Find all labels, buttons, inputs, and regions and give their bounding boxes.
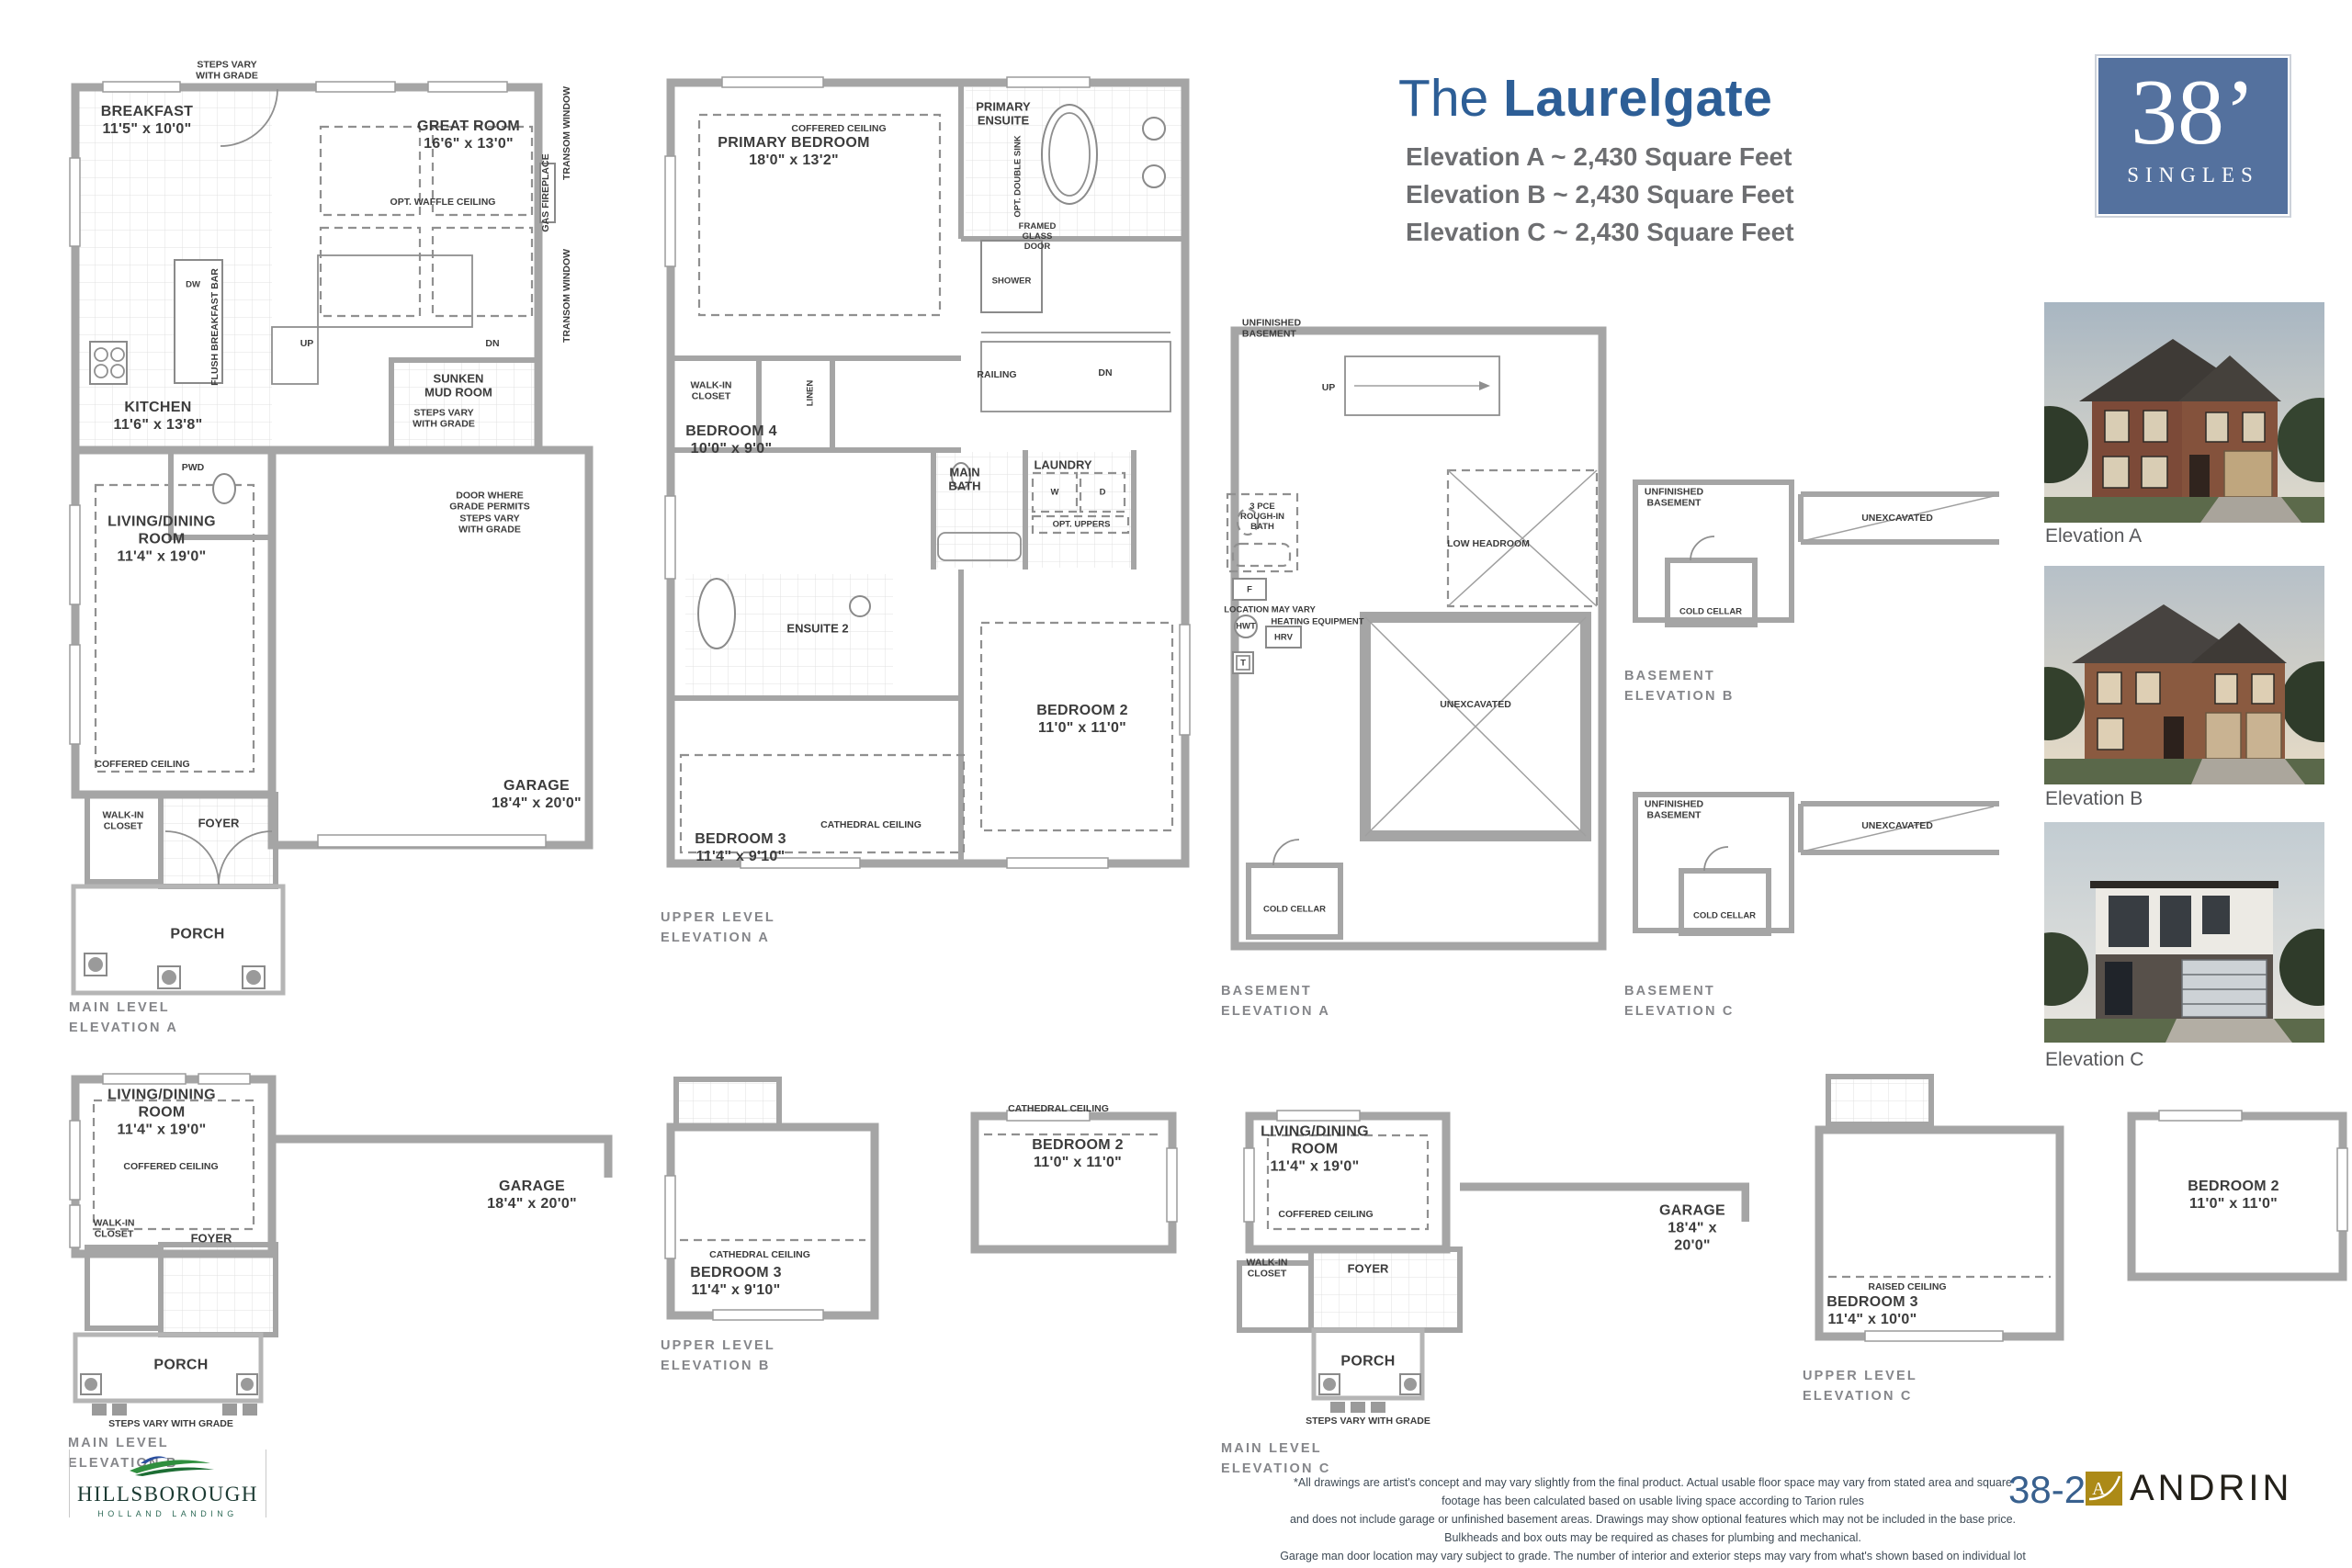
foyer-label: FOYER bbox=[1348, 1261, 1389, 1275]
elevation-c-photo bbox=[2044, 822, 2324, 1043]
raised-ceiling-label: RAISED CEILING bbox=[1868, 1281, 1946, 1292]
cold-cellar-label: COLD CELLAR bbox=[1263, 904, 1326, 914]
bedroom2-label: BEDROOM 2 11'0" x 11'0" bbox=[1032, 1137, 1124, 1172]
page-title-name: Laurelgate bbox=[1503, 69, 1772, 128]
foyer-label: FOYER bbox=[191, 1231, 232, 1245]
hwt-label: HWT bbox=[1236, 621, 1256, 631]
page-code: 38-2 bbox=[2008, 1468, 2086, 1512]
double-sink-label: OPT. DOUBLE SINK bbox=[1012, 135, 1023, 217]
builder-logo: A ANDRIN bbox=[2086, 1468, 2292, 1509]
unexcavated-label: UNEXCAVATED bbox=[1861, 820, 1933, 831]
walk-in-closet-label: WALK-IN CLOSET bbox=[691, 380, 732, 403]
dishwasher-label: DW bbox=[186, 279, 200, 289]
coffered-ceiling-label: COFFERED CEILING bbox=[95, 759, 189, 770]
bedroom3-label: BEDROOM 3 11'4" x 9'10" bbox=[690, 1265, 782, 1300]
porch-label: PORCH bbox=[1340, 1354, 1395, 1371]
basement-c-plan: UNFINISHED BASEMENT UNEXCAVATED COLD CEL… bbox=[1617, 716, 2003, 1047]
plan-caption: UPPER LEVEL ELEVATION A bbox=[661, 908, 775, 949]
unexcavated-label: UNEXCAVATED bbox=[1861, 513, 1933, 524]
legal-disclaimer: *All drawings are artist's concept and m… bbox=[1277, 1473, 2029, 1568]
rough-in-bath-label: 3 PCE ROUGH-IN BATH bbox=[1240, 502, 1284, 533]
cold-cellar-label: COLD CELLAR bbox=[1679, 606, 1742, 616]
washer-label: W bbox=[1051, 487, 1059, 497]
badge-type: SINGLES bbox=[2098, 164, 2288, 187]
plan-caption: BASEMENT ELEVATION A bbox=[1221, 981, 1330, 1022]
elevation-a-photo bbox=[2044, 302, 2324, 523]
steps-vary-label: STEPS VARY WITH GRADE bbox=[108, 1418, 233, 1429]
garage-label: GARAGE 18'4" x 20'0" bbox=[1659, 1203, 1725, 1256]
elevation-b-photo bbox=[2044, 566, 2324, 784]
disclaimer-line: and does not include garage or unfinishe… bbox=[1277, 1510, 2029, 1547]
community-tagline: HOLLAND LANDING bbox=[70, 1509, 266, 1518]
opt-uppers-label: OPT. UPPERS bbox=[1053, 519, 1111, 529]
living-dining-label: LIVING/DINING ROOM 11'4" x 19'0" bbox=[107, 514, 216, 567]
kitchen-label: KITCHEN 11'6" x 13'8" bbox=[114, 400, 203, 434]
elevation-c-caption: Elevation C bbox=[2045, 1049, 2143, 1071]
community-logo-swoosh bbox=[113, 1452, 223, 1476]
unexcavated-label: UNEXCAVATED bbox=[1440, 699, 1511, 710]
badge-width: 38’ bbox=[2098, 63, 2288, 162]
cathedral-ceiling-label: CATHEDRAL CEILING bbox=[1008, 1103, 1109, 1114]
porch-column bbox=[85, 953, 265, 988]
walk-in-closet-label: WALK-IN CLOSET bbox=[103, 810, 144, 833]
subtitle-elevation-b: Elevation B ~ 2,430 Square Feet bbox=[1406, 175, 1794, 213]
plan-caption: UPPER LEVEL ELEVATION B bbox=[661, 1336, 775, 1377]
transom-window-label: TRANSOM WINDOW bbox=[561, 249, 572, 343]
main-level-b-plan: LIVING/DINING ROOM 11'4" x 19'0" COFFERE… bbox=[42, 1066, 630, 1461]
basement-b-plan: UNFINISHED BASEMENT UNEXCAVATED COLD CEL… bbox=[1617, 404, 2003, 735]
door-grade-note: DOOR WHERE GRADE PERMITS STEPS VARY WITH… bbox=[449, 490, 530, 536]
thermostat-label: T bbox=[1240, 658, 1246, 668]
freezer-label: F bbox=[1247, 584, 1252, 594]
elevation-a-caption: Elevation A bbox=[2045, 525, 2142, 547]
hrv-label: HRV bbox=[1274, 632, 1293, 642]
plan-caption: BASEMENT ELEVATION B bbox=[1624, 666, 1735, 707]
porch-label: PORCH bbox=[170, 927, 224, 944]
steps-vary-label: STEPS VARY WITH GRADE bbox=[413, 408, 475, 431]
laundry-label: LAUNDRY bbox=[1034, 457, 1091, 471]
page-title: The Laurelgate bbox=[1398, 68, 1772, 129]
upper-level-a-plan: COFFERED CEILING PRIMARY BEDROOM 18'0" x… bbox=[658, 55, 1209, 983]
low-headroom-label: LOW HEADROOM bbox=[1447, 538, 1530, 549]
main-bath-label: MAIN BATH bbox=[948, 466, 980, 494]
living-dining-label: LIVING/DINING ROOM 11'4" x 19'0" bbox=[1261, 1124, 1369, 1177]
cathedral-ceiling-label: CATHEDRAL CEILING bbox=[820, 819, 922, 830]
coffered-ceiling-label: COFFERED CEILING bbox=[1278, 1209, 1373, 1220]
stairs-up-label: UP bbox=[300, 338, 314, 349]
transom-window-label: TRANSOM WINDOW bbox=[561, 86, 572, 180]
main-level-c-plan: LIVING/DINING ROOM 11'4" x 19'0" COFFERE… bbox=[1216, 1102, 1749, 1488]
ensuite2-label: ENSUITE 2 bbox=[786, 621, 848, 635]
living-dining-label: LIVING/DINING ROOM 11'4" x 19'0" bbox=[107, 1088, 216, 1140]
upper-level-c-plan: BEDROOM 2 11'0" x 11'0" RAISED CEILING B… bbox=[1801, 1066, 2352, 1424]
bedroom3-label: BEDROOM 3 11'4" x 10'0" bbox=[1826, 1294, 1918, 1329]
stairs-down-label: DN bbox=[485, 338, 499, 349]
svg-text:A: A bbox=[2092, 1479, 2106, 1499]
dryer-label: D bbox=[1100, 487, 1106, 497]
stairs-down-label: DN bbox=[1098, 367, 1112, 378]
mud-room-label: SUNKEN MUD ROOM bbox=[424, 372, 492, 400]
bedroom3-label: BEDROOM 3 11'4" x 9'10" bbox=[695, 831, 786, 866]
elevation-c-rendering bbox=[2044, 822, 2324, 1043]
cold-cellar-label: COLD CELLAR bbox=[1693, 910, 1756, 920]
page-title-prefix: The bbox=[1398, 69, 1488, 128]
elevation-b-caption: Elevation B bbox=[2045, 788, 2143, 810]
unfinished-basement-label: UNFINISHED BASEMENT bbox=[1242, 318, 1301, 341]
walk-in-closet-label: WALK-IN CLOSET bbox=[1247, 1258, 1288, 1280]
brochure-page: The Laurelgate Elevation A ~ 2,430 Squar… bbox=[0, 0, 2352, 1568]
coffered-ceiling-label: COFFERED CEILING bbox=[123, 1161, 218, 1172]
breakfast-label: BREAKFAST 11'5" x 10'0" bbox=[101, 104, 193, 139]
great-room-label: GREAT ROOM 16'6" x 13'0" bbox=[417, 118, 520, 153]
disclaimer-line: *All drawings are artist's concept and m… bbox=[1277, 1473, 2029, 1510]
bedroom2-label: BEDROOM 2 11'0" x 11'0" bbox=[1036, 703, 1128, 738]
community-name: HILLSBOROUGH bbox=[70, 1483, 266, 1506]
cathedral-ceiling-label: CATHEDRAL CEILING bbox=[709, 1249, 810, 1260]
linen-label: LINEN bbox=[805, 380, 815, 407]
lot-width-badge: 38’ SINGLES bbox=[2098, 58, 2288, 214]
steps-vary-label: STEPS VARY WITH GRADE bbox=[1306, 1416, 1430, 1427]
foyer-label: FOYER bbox=[198, 816, 240, 829]
railing-label: RAILING bbox=[977, 369, 1016, 380]
porch-label: PORCH bbox=[153, 1358, 208, 1375]
bedroom2-label: BEDROOM 2 11'0" x 11'0" bbox=[2188, 1179, 2279, 1213]
community-logo: HILLSBOROUGH HOLLAND LANDING bbox=[69, 1450, 266, 1517]
stairs-up-label: UP bbox=[1322, 382, 1336, 393]
plan-caption: BASEMENT ELEVATION C bbox=[1624, 981, 1735, 1022]
unfinished-basement-label: UNFINISHED BASEMENT bbox=[1645, 487, 1703, 510]
steps-vary-label: STEPS VARY WITH GRADE bbox=[196, 60, 258, 83]
subtitle-elevation-a: Elevation A ~ 2,430 Square Feet bbox=[1406, 138, 1794, 175]
gas-fireplace-label: GAS FIREPLACE bbox=[540, 153, 551, 231]
location-may-vary-label: LOCATION MAY VARY bbox=[1224, 604, 1316, 615]
unfinished-basement-label: UNFINISHED BASEMENT bbox=[1645, 799, 1703, 822]
main-level-a-plan: STEPS VARY WITH GRADE BREAKFAST 11'5" x … bbox=[42, 55, 630, 1047]
garage-label: GARAGE 18'4" x 20'0" bbox=[487, 1179, 577, 1213]
elevation-b-rendering bbox=[2044, 566, 2324, 784]
builder-name: ANDRIN bbox=[2130, 1468, 2292, 1509]
plan-caption: MAIN LEVEL ELEVATION A bbox=[69, 998, 178, 1039]
heating-equipment-label: HEATING EQUIPMENT bbox=[1271, 616, 1363, 626]
plan-caption: UPPER LEVEL ELEVATION C bbox=[1803, 1366, 1917, 1407]
builder-logo-mark: A bbox=[2086, 1472, 2122, 1506]
subtitle-elevation-c: Elevation C ~ 2,430 Square Feet bbox=[1406, 213, 1794, 251]
breakfast-bar-label: FLUSH BREAKFAST BAR bbox=[209, 268, 220, 386]
coffered-ceiling-label: COFFERED CEILING bbox=[791, 123, 886, 134]
basement-a-plan: UNFINISHED BASEMENT UP 3 PCE ROUGH-IN BA… bbox=[1216, 303, 1621, 1020]
primary-ensuite-label: PRIMARY ENSUITE bbox=[976, 100, 1030, 129]
powder-room-label: PWD bbox=[182, 462, 205, 473]
framed-glass-door-label: FRAMED GLASS DOOR bbox=[1019, 221, 1057, 253]
elevation-a-rendering bbox=[2044, 302, 2324, 523]
upper-level-b-plan: CATHEDRAL CEILING BEDROOM 2 11'0" x 11'0… bbox=[658, 1066, 1182, 1382]
disclaimer-line: Garage man door location may vary subjec… bbox=[1277, 1547, 2029, 1568]
walk-in-closet-label: WALK-IN CLOSET bbox=[94, 1218, 135, 1241]
waffle-ceiling-label: OPT. WAFFLE CEILING bbox=[390, 197, 496, 208]
bedroom4-label: BEDROOM 4 10'0" x 9'0" bbox=[685, 423, 777, 458]
garage-label: GARAGE 18'4" x 20'0" bbox=[492, 778, 582, 813]
shower-label: SHOWER bbox=[992, 276, 1032, 286]
primary-bedroom-label: PRIMARY BEDROOM 18'0" x 13'2" bbox=[718, 135, 869, 170]
elevation-subtitles: Elevation A ~ 2,430 Square Feet Elevatio… bbox=[1406, 138, 1794, 251]
